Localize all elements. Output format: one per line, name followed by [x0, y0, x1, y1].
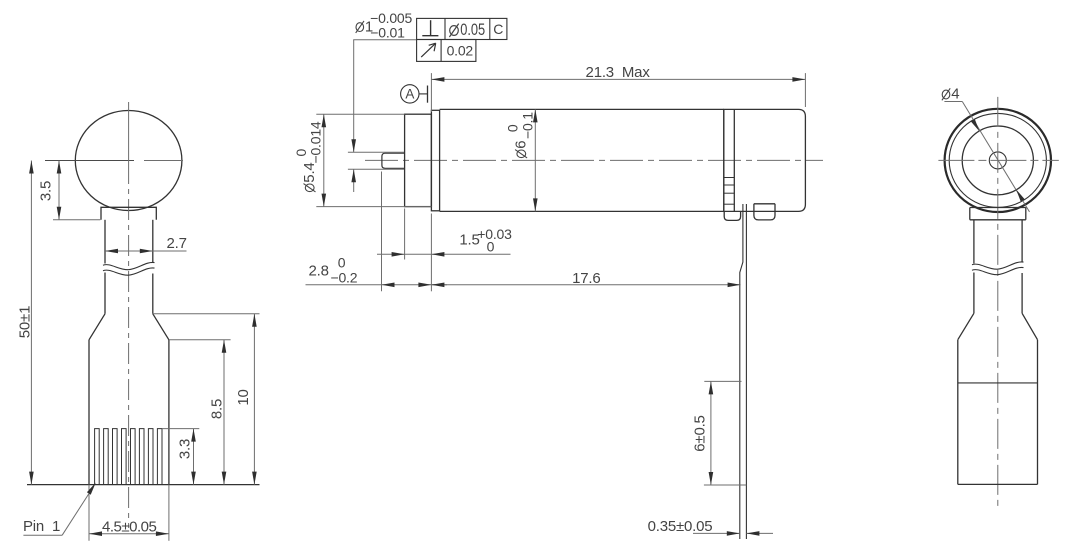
svg-text:10: 10	[235, 389, 252, 405]
svg-text:0: 0	[487, 239, 495, 255]
svg-text:C: C	[493, 21, 503, 37]
svg-text:−0.005: −0.005	[370, 10, 412, 26]
svg-text:21.3 Max: 21.3 Max	[586, 64, 651, 81]
svg-text:−0.1: −0.1	[519, 112, 535, 139]
svg-text:0.02: 0.02	[447, 42, 474, 58]
svg-text:+0.03: +0.03	[477, 226, 512, 242]
svg-text:4: 4	[951, 86, 959, 103]
svg-text:50±1: 50±1	[16, 306, 33, 338]
svg-text:A: A	[405, 87, 414, 102]
svg-text:0.05: 0.05	[460, 21, 485, 39]
svg-text:4.5±0.05: 4.5±0.05	[102, 518, 156, 535]
svg-text:−0.01: −0.01	[370, 25, 405, 41]
svg-text:2.7: 2.7	[167, 235, 187, 252]
svg-text:6±0.5: 6±0.5	[691, 415, 708, 451]
svg-text:2.8: 2.8	[309, 263, 329, 280]
svg-text:−0.2: −0.2	[331, 270, 358, 286]
svg-text:0: 0	[338, 254, 346, 270]
svg-text:3.5: 3.5	[37, 181, 54, 201]
svg-text:8.5: 8.5	[208, 399, 225, 419]
svg-text:17.6: 17.6	[572, 270, 600, 287]
svg-text:0: 0	[293, 149, 309, 157]
svg-text:5.4: 5.4	[301, 162, 318, 182]
svg-text:6: 6	[513, 141, 530, 149]
svg-text:0.35±0.05: 0.35±0.05	[648, 518, 713, 535]
svg-text:0: 0	[505, 124, 521, 132]
svg-text:Pin 1: Pin 1	[23, 518, 60, 535]
svg-text:3.3: 3.3	[176, 439, 193, 459]
svg-text:−0.014: −0.014	[308, 121, 324, 163]
